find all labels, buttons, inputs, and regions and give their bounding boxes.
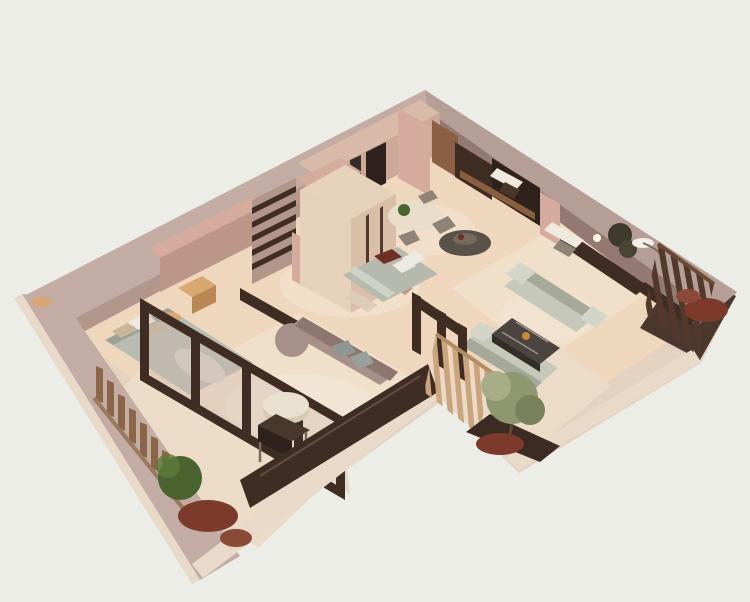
bedside-stool bbox=[32, 297, 52, 307]
table-lamp-gold bbox=[522, 332, 530, 340]
green-bush-highlight bbox=[156, 454, 180, 478]
wall-light bbox=[593, 234, 601, 242]
red-plants-right bbox=[476, 433, 524, 455]
slat-left-5 bbox=[140, 422, 147, 458]
red-plants-left bbox=[178, 500, 238, 532]
slat-left-4 bbox=[129, 408, 136, 444]
apartment-render-stage bbox=[0, 0, 750, 602]
bedroom-middle-glass-post-1 bbox=[412, 292, 421, 355]
table-decor-red bbox=[458, 234, 464, 240]
red-plants-far-2 bbox=[676, 289, 700, 303]
glass-post-1 bbox=[140, 302, 149, 379]
ottoman-round bbox=[263, 392, 309, 418]
olive-canopy-2 bbox=[481, 371, 511, 401]
slat-left-2 bbox=[107, 380, 114, 417]
round-side-table bbox=[453, 233, 477, 245]
dining-table bbox=[388, 201, 442, 231]
glass-post-2 bbox=[191, 332, 200, 407]
red-plants-left-2 bbox=[220, 529, 252, 547]
glass-post-3 bbox=[242, 362, 251, 435]
slat-left-3 bbox=[118, 394, 125, 431]
floor-plan-3d-render bbox=[0, 0, 750, 602]
olive-canopy-3 bbox=[515, 395, 545, 425]
slat-left-1 bbox=[96, 366, 103, 403]
table-plant bbox=[398, 204, 410, 216]
